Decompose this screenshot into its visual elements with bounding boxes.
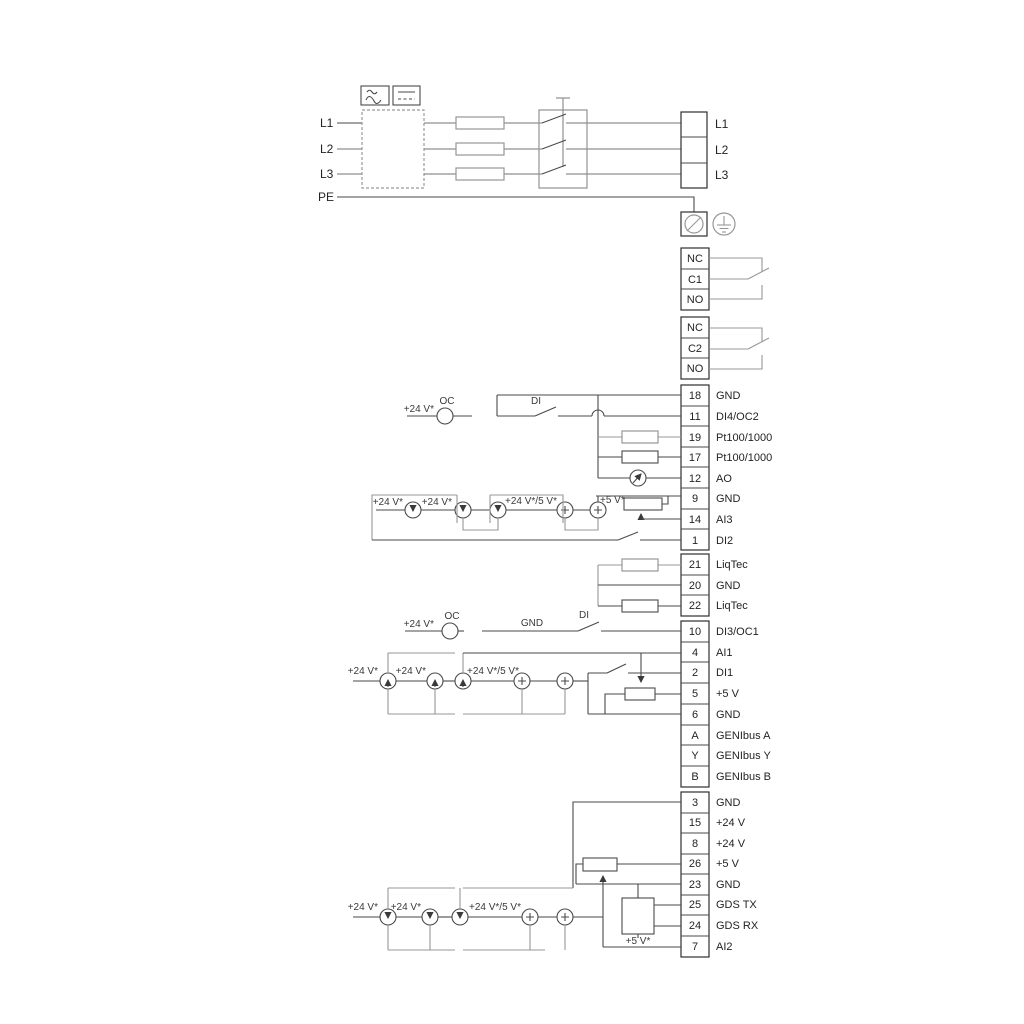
supply-label: +24 V*/5 V* [469,902,521,913]
relay1-nc-label: NC [687,253,703,265]
terminal-number: 9 [692,493,698,505]
main-switch [504,98,681,188]
relay2-nc-label: NC [687,322,703,334]
section-b-wiring: +24 V* OC GND DI +24 V* +24 V* +24 V*/5 … [348,610,681,714]
relay2-block: NC C2 NO [681,317,769,379]
terminal-label: GND [716,797,741,809]
earth-ground-icon [713,213,735,235]
terminal-number: 11 [689,411,700,423]
terminal-number: 7 [692,941,698,953]
gnd-label: GND [521,618,543,629]
gds-sensor-box: +5 V* [622,884,681,947]
fuse-l3 [456,168,504,180]
dc-icon [393,86,420,105]
terminal-number: 19 [689,432,701,444]
terminal-number: 18 [689,390,701,402]
supply-label: +24 V* [404,404,434,415]
terminal-label: GENIbus B [716,771,771,783]
terminal-number: 24 [689,920,701,932]
potentiometer [583,858,617,871]
sensor-option-group-c: +24 V* +24 V* +24 V*/5 V* [348,888,603,950]
sensor-option-group-b: +24 V* +24 V* +24 V*/5 V* [348,653,588,714]
potentiometer [625,688,655,700]
supply-label: +24 V* [422,497,452,508]
pt100-resistor [622,431,658,443]
oc-label: OC [445,611,460,622]
relay1-block: NC C1 NO [681,248,769,310]
terminal-number: 12 [689,473,701,485]
terminal-number: 8 [692,838,698,850]
power-in-l3-label: L3 [320,167,334,181]
terminal-strip-c: 3 GND 15 +24 V 8 +24 V 26 +5 V 23 GND 25… [681,792,759,957]
supply-label: +24 V* [404,619,434,630]
terminal-label: AI1 [716,647,733,659]
terminal-label: LiqTec [716,559,748,571]
terminal-number: 10 [689,626,701,638]
liqtec-resistor [622,559,658,571]
oc-label: OC [440,396,455,407]
relay2-contact-wires [709,328,769,369]
terminal-label: GND [716,493,741,505]
relay1-no-label: NO [687,294,704,306]
pt100-resistor [622,451,658,463]
terminal-label: AI2 [716,941,733,953]
supply-label: +24 V*/5 V* [505,496,557,507]
di-label: DI [531,396,541,407]
di-label: DI [579,610,589,621]
power-in-pe-label: PE [318,190,334,204]
terminal-label: DI2 [716,535,733,547]
power-in-l1-label: L1 [320,116,334,130]
section-a-wiring: +24 V* OC DI +5 V* +24 V* +24 V* +2 [372,395,681,540]
terminal-label: Pt100/1000 [716,452,772,464]
terminal-number: 14 [689,514,701,526]
terminal-label: GDS TX [716,899,757,911]
terminal-label: +24 V [716,817,746,829]
supply-label: +24 V* [373,497,403,508]
open-collector-symbol [442,623,458,639]
supply-label: +24 V* [348,666,378,677]
supply-label: +24 V*/5 V* [467,666,519,677]
terminal-label: +5 V [716,688,740,700]
terminal-label: LiqTec [716,600,748,612]
power-out-l1-label: L1 [715,117,729,131]
terminal-number: 21 [689,559,701,571]
terminal-label: GND [716,709,741,721]
terminal-label: GENIbus A [716,730,771,742]
mains-input-section: L1 L2 L3 PE [318,86,735,236]
power-in-l2-label: L2 [320,142,334,156]
relay1-contact-wires [709,258,769,299]
terminal-number: 26 [689,858,701,870]
potentiometer [624,498,662,510]
terminal-number: 2 [692,667,698,679]
terminal-label: Pt100/1000 [716,432,772,444]
terminal-label: GND [716,879,741,891]
relay1-c-label: C1 [688,274,702,286]
terminal-label: AI3 [716,514,733,526]
terminal-strip-liqtec: 21 LiqTec 20 GND 22 LiqTec [681,554,748,616]
relay2-no-label: NO [687,363,704,375]
filter-to-fuse-wires [424,123,456,174]
terminal-label: DI3/OC1 [716,626,759,638]
power-out-l2-label: L2 [715,143,729,157]
fuse-l1 [456,117,504,129]
terminal-number: 25 [689,899,701,911]
ac-icon [361,86,389,105]
liqtec-resistor [622,600,658,612]
terminal-number: 20 [689,580,701,592]
supply-label: +24 V* [396,666,426,677]
terminal-label: DI4/OC2 [716,411,759,423]
terminal-number: 17 [689,452,701,464]
terminal-number: 15 [689,817,701,829]
terminal-number: 6 [692,709,698,721]
emc-filter-box [362,110,424,188]
wiring-diagram: L1 L2 L3 PE [0,0,1024,1024]
terminal-number: B [691,771,698,783]
supply-label: +24 V* [348,902,378,913]
section-c-wiring: +24 V* +24 V* +24 V*/5 V* [348,802,681,950]
pe-screw-terminal [681,212,707,236]
terminal-label: DI1 [716,667,733,679]
terminal-label: AO [716,473,732,485]
terminal-number: 23 [689,879,701,891]
terminal-strip-a: 18 GND 11 DI4/OC2 19 Pt100/1000 17 Pt100… [681,385,772,550]
terminal-label: GDS RX [716,920,759,932]
terminal-number: A [691,730,699,742]
terminal-label: +24 V [716,838,746,850]
terminal-label: GENIbus Y [716,750,771,762]
terminal-number: 3 [692,797,698,809]
wiring-diagram-svg: L1 L2 L3 PE [0,0,1024,1024]
supply-label: +5 V* [626,936,651,947]
supply-label: +24 V* [391,902,421,913]
liqtec-wiring [598,559,681,612]
mains-terminal-block: L1 L2 L3 [681,112,729,188]
terminal-strip-b: 10 DI3/OC1 4 AI1 2 DI1 5 +5 V 6 GND A GE… [681,621,771,787]
power-out-l3-label: L3 [715,168,729,182]
terminal-number: 4 [692,647,698,659]
mains-lead-wires [337,123,694,212]
fuse-l2 [456,143,504,155]
terminal-label: GND [716,580,741,592]
terminal-number: 1 [692,535,698,547]
terminal-label: GND [716,390,741,402]
terminal-number: 22 [689,600,701,612]
sensor-option-group-a: +24 V* +24 V* +24 V*/5 V* [372,495,606,540]
terminal-label: +5 V [716,858,740,870]
open-collector-symbol [437,408,453,424]
terminal-number: 5 [692,688,698,700]
relay2-c-label: C2 [688,343,702,355]
terminal-number: Y [691,750,699,762]
